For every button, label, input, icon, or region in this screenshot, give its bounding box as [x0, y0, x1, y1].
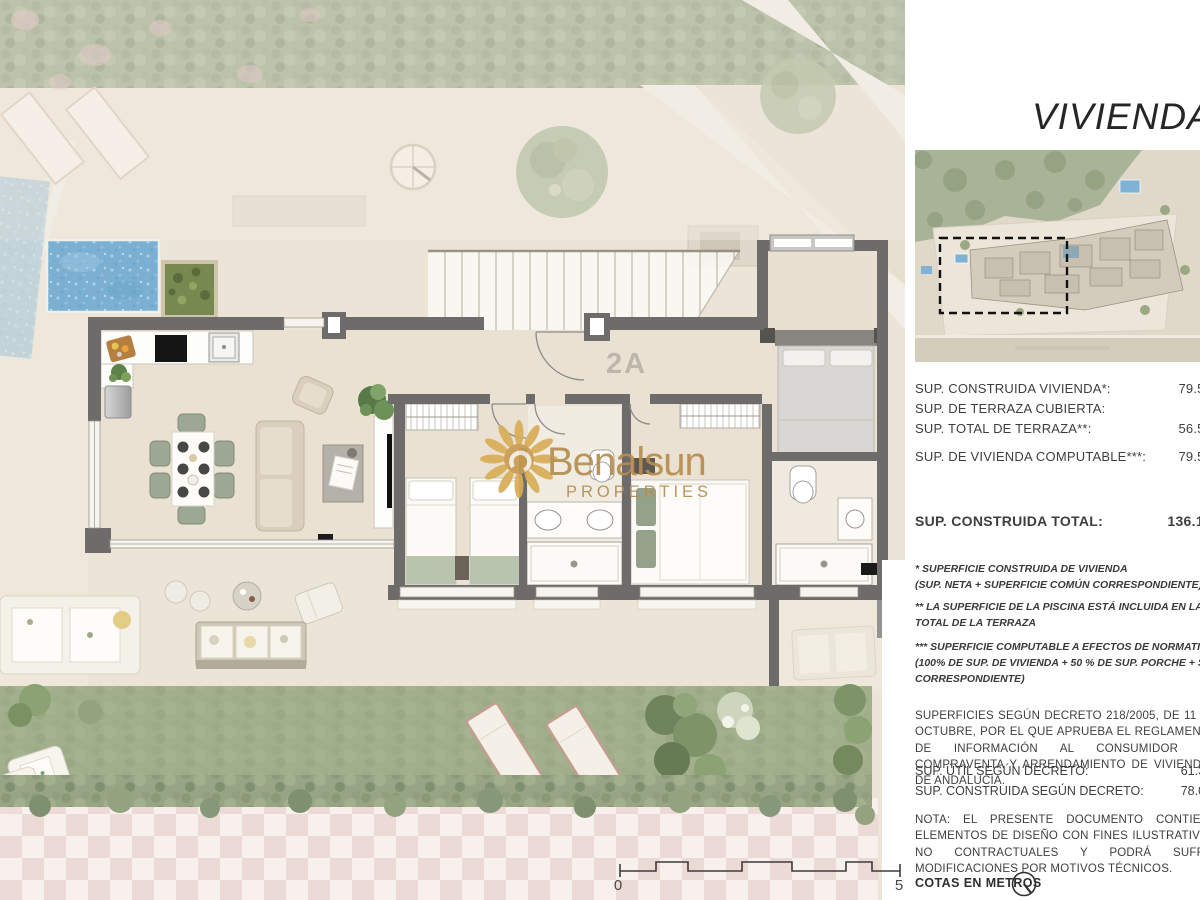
sink-icon — [209, 333, 239, 362]
page-title: VIVIENDA 2ºA — [1032, 96, 1200, 138]
fridge-icon — [105, 386, 131, 418]
master-bedroom — [760, 328, 888, 454]
side-table-icon — [233, 582, 261, 610]
area-row: SUP. CONSTRUIDA VIVIENDA*: 79.59 — [915, 381, 1200, 396]
sink-icon — [587, 510, 613, 530]
niche-window — [770, 235, 854, 251]
cooktop-icon — [155, 335, 187, 362]
checkered-paving — [0, 798, 878, 900]
area-row: SUP. DE TERRAZA CUBIERTA: – — [915, 401, 1200, 416]
decree-row-value: 78.09 — [1181, 784, 1200, 798]
decree-row-value: 61.36 — [1181, 764, 1200, 778]
north-arrow-icon — [1011, 871, 1039, 899]
twin-bed — [406, 478, 456, 584]
scale-end-label: 5 — [895, 877, 903, 894]
sofa — [256, 421, 304, 531]
plunge-pool — [47, 240, 159, 312]
area-row-label: SUP. DE TERRAZA CUBIERTA: — [915, 401, 1105, 416]
footnote-line: CORRESPONDIENTE) — [915, 673, 1200, 685]
tv-unit — [374, 416, 393, 528]
area-row-label: SUP. TOTAL DE TERRAZA**: — [915, 421, 1092, 436]
area-total-row: SUP. CONSTRUIDA TOTAL: 136.17 — [915, 513, 1200, 529]
footnote-line: TOTAL DE LA TERRAZA — [915, 617, 1200, 629]
area-row-value: 56.58 — [1178, 421, 1200, 436]
decree-row-label: SUP. CONSTRUIDA SEGÚN DECRETO: — [915, 784, 1144, 798]
twin-bed — [470, 478, 520, 584]
area-row: SUP. DE VIVIENDA COMPUTABLE***: 79.59 — [915, 449, 1200, 464]
footnote-line: (100% DE SUP. DE VIVIENDA + 50 % DE SUP.… — [915, 657, 1200, 669]
floor-plan: 0 5 2A Benalsun PROPERTIES — [0, 0, 905, 900]
area-total-value: 136.17 — [1167, 513, 1200, 529]
tv-icon — [387, 434, 392, 508]
note-paragraph: NOTA: EL PRESENTE DOCUMENTO CONTIENE ELE… — [915, 812, 1200, 877]
toilet-icon — [790, 466, 816, 503]
sink-icon — [535, 510, 561, 530]
coffee-table — [323, 445, 363, 502]
footnote-line: * SUPERFICIE CONSTRUIDA DE VIVIENDA — [915, 563, 1200, 575]
decree-row: SUP. CONSTRUIDA SEGÚN DECRETO: 78.09 — [915, 784, 1200, 798]
watermark-brand: Benalsun — [547, 440, 706, 484]
outdoor-corner-sofa — [0, 596, 140, 674]
nightstand — [455, 556, 469, 580]
bathroom2 — [772, 461, 877, 585]
decree-row-label: SUP. ÚTIL SEGÚN DECRETO: — [915, 764, 1088, 778]
area-row-label: SUP. CONSTRUIDA VIVIENDA*: — [915, 381, 1111, 396]
area-total-label: SUP. CONSTRUIDA TOTAL: — [915, 513, 1103, 529]
site-minimap — [915, 150, 1200, 362]
area-row-label: SUP. DE VIVIENDA COMPUTABLE***: — [915, 449, 1146, 464]
washbasin-icon — [838, 498, 872, 540]
shower-icon — [776, 544, 872, 585]
footnote-line: ** LA SUPERFICIE DE LA PISCINA ESTÁ INCL… — [915, 601, 1200, 613]
planter-box — [163, 262, 216, 317]
area-row-value: 79.59 — [1178, 449, 1200, 464]
unit-label: 2A — [606, 348, 647, 380]
floor-vent-icon — [861, 563, 877, 575]
scale-start-label: 0 — [614, 877, 622, 894]
outdoor-sofa — [196, 622, 306, 669]
watermark-sub: PROPERTIES — [566, 483, 712, 501]
footnote-line: (SUP. NETA + SUPERFICIE COMÚN CORRESPOND… — [915, 579, 1200, 591]
footnote-line: *** SUPERFICIE COMPUTABLE A EFECTOS DE N… — [915, 641, 1200, 653]
shower-icon — [527, 542, 622, 585]
area-row-value: 79.59 — [1178, 381, 1200, 396]
decree-row: SUP. ÚTIL SEGÚN DECRETO: 61.36 — [915, 764, 1200, 778]
area-row: SUP. TOTAL DE TERRAZA**: 56.58 — [915, 421, 1200, 436]
